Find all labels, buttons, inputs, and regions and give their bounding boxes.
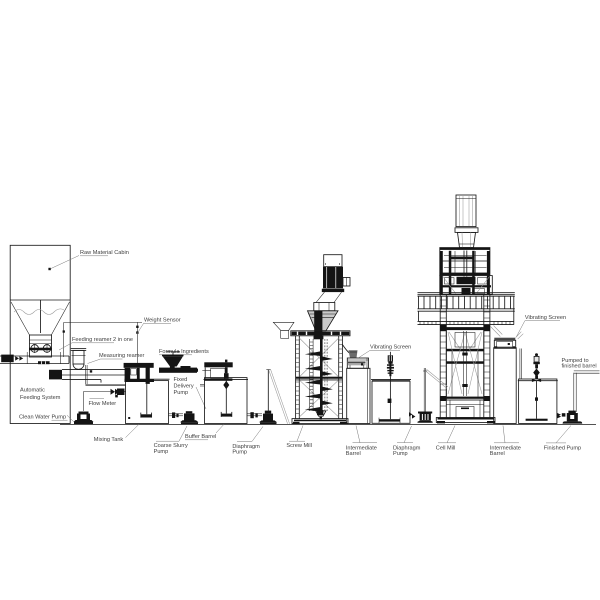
svg-text:Pump: Pump [232,449,247,455]
svg-text:Vibrating Screen: Vibrating Screen [525,315,566,321]
svg-text:Finished Pump: Finished Pump [544,445,581,451]
svg-text:Automatic: Automatic [20,388,45,394]
svg-text:Pump: Pump [154,449,169,455]
svg-text:Delivery: Delivery [174,384,194,390]
svg-text:Clean Water Pump: Clean Water Pump [19,414,66,420]
svg-text:Formula Ingredients: Formula Ingredients [159,349,209,355]
svg-text:Raw Material Cabin: Raw Material Cabin [80,250,129,256]
svg-text:Cell Mill: Cell Mill [436,445,456,451]
svg-text:Flow Meter: Flow Meter [89,401,117,407]
svg-text:Fixed: Fixed [174,377,188,383]
svg-text:Measuring reamer: Measuring reamer [99,353,145,359]
svg-text:Barrel: Barrel [346,451,361,457]
svg-text:Mixing Tank: Mixing Tank [94,437,124,443]
svg-text:Pump: Pump [393,451,408,457]
svg-text:Pump: Pump [174,390,189,396]
svg-text:Vibrating Screen: Vibrating Screen [370,345,411,351]
svg-text:Feeding reamer 2 in one: Feeding reamer 2 in one [72,337,133,343]
svg-text:Barrel: Barrel [490,451,505,457]
svg-text:finished barrel: finished barrel [562,364,597,370]
svg-text:Screw Mill: Screw Mill [286,443,311,449]
svg-text:Buffer Barrel: Buffer Barrel [185,434,216,440]
svg-text:Feeding System: Feeding System [20,395,61,401]
svg-text:Weight Sensor: Weight Sensor [144,318,181,324]
